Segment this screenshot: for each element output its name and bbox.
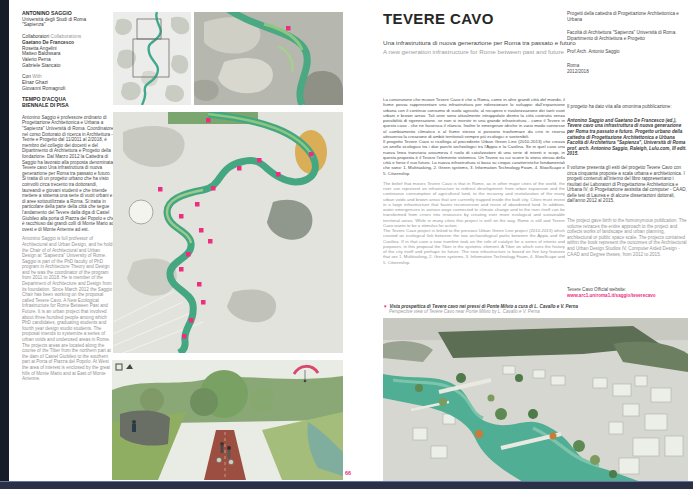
masterplan-aerial-image [113,112,343,353]
with-label-it: Con [22,74,31,79]
figure-caption-english: Perspective view of Tevere Cavo near Pon… [383,309,683,314]
website-link[interactable]: www.arc1.uniroma1.it/saggio/teverecavo [567,293,689,299]
volume-description-italian: Il volume presenta gli esiti del progett… [567,165,689,204]
magazine-spread-page: ANTONINO SAGGIO Università degli Studi d… [0,0,693,489]
book-spine-strip [0,0,9,489]
collaborators-label-en: Collaborations [49,34,81,39]
caption-arrow-icon: ▼ [383,304,387,309]
credits-faculty: Facoltà di Architettura "Sapienza" Unive… [567,30,689,41]
collaborators-label-it: Collaboratori [22,34,49,39]
article-title: TEVERE CAVO [383,10,583,27]
satellite-river-bend-image [194,12,343,105]
with-label-en: With [31,74,42,79]
page-number: 66 [345,470,351,476]
volume-description-english: The project gave birth to the homonymous… [567,218,689,257]
satellite-river-bend-graphic [194,12,343,105]
body-english-paragraph: The belief that moves Tevere Cavo is tha… [383,181,565,228]
body-italian-paragraph: La convinzione che muove Tevere Cavo è c… [383,97,565,139]
publication-intro: Il progetto ha dato vita alla omonima pu… [567,104,689,110]
masterplan-aerial-graphic [113,112,343,353]
author-bio-english: Antonino Saggio is full professor of Arc… [22,236,115,381]
bottom-bar-strip [0,481,693,489]
body-english-paragraph: The Tevere Cavo project is linked to the… [383,228,565,265]
cyclepath-render-image [112,360,343,480]
body-italian-paragraph: Il progetto Tevere Cavo si ricollega al … [383,139,565,176]
credits-chair: Progetti della cattedra di Progettazione… [567,11,689,22]
cyclepath-render-graphic [112,360,343,480]
author-column: ANTONINO SAGGIO Università degli Studi d… [22,11,115,476]
figure-caption-italian-text: Vista prospettica di Tevere cavo nei pre… [389,304,578,309]
ponte-milvio-render-image [383,318,688,482]
rome-city-map-graphic [113,12,191,105]
credits-column: Progetti della cattedra di Progettazione… [567,11,689,306]
article-body: La convinzione che muove Tevere Cavo è c… [383,97,565,302]
publication-citation: Antonino Saggio and Gaetano De Francesco… [567,118,689,157]
rome-city-map-image [113,12,191,105]
ponte-milvio-render-graphic [383,318,688,482]
author-bio-italian: Antonino Saggio è professore ordinario d… [22,115,115,232]
